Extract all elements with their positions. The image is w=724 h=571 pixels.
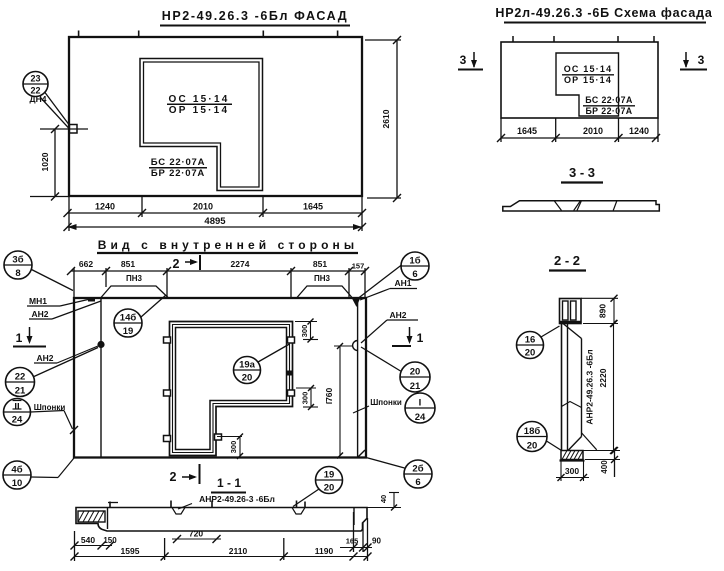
svg-text:2610: 2610	[381, 109, 391, 128]
svg-text:150: 150	[103, 536, 117, 545]
svg-text:ОС 15·14: ОС 15·14	[564, 64, 613, 74]
svg-text:23: 23	[30, 74, 40, 84]
svg-text:890: 890	[598, 304, 608, 318]
svg-text:АН2: АН2	[389, 310, 406, 320]
svg-text:300: 300	[301, 392, 310, 405]
svg-text:Вид с внутренней стороны: Вид с внутренней стороны	[98, 238, 359, 252]
svg-text:БР 22·07А: БР 22·07А	[585, 106, 632, 116]
svg-text:ПН3: ПН3	[314, 274, 331, 283]
svg-text:1190: 1190	[315, 546, 334, 556]
svg-text:20: 20	[242, 372, 253, 383]
svg-text:БР 22·07А: БР 22·07А	[151, 168, 205, 179]
svg-text:АНР2-49.26-3 -6Бл: АНР2-49.26-3 -6Бл	[199, 494, 275, 504]
svg-text:1645: 1645	[303, 202, 323, 212]
svg-text:20: 20	[525, 347, 536, 358]
svg-text:300: 300	[300, 325, 309, 338]
svg-text:2274: 2274	[231, 259, 250, 269]
svg-text:II: II	[14, 402, 19, 413]
svg-text:1: 1	[417, 331, 424, 345]
svg-text:1020: 1020	[40, 152, 50, 171]
svg-text:24: 24	[415, 412, 426, 423]
svg-text:АН2: АН2	[31, 309, 48, 319]
svg-text:1б: 1б	[409, 256, 420, 267]
svg-text:6: 6	[415, 477, 420, 488]
svg-text:20: 20	[527, 440, 538, 451]
svg-text:4б: 4б	[11, 465, 22, 476]
svg-text:400: 400	[600, 460, 609, 474]
svg-text:40: 40	[379, 495, 388, 503]
svg-text:2б: 2б	[412, 464, 423, 475]
svg-text:851: 851	[313, 259, 327, 269]
svg-text:ſ760: ſ760	[324, 387, 334, 404]
svg-text:19: 19	[324, 470, 335, 481]
svg-text:Шпонки: Шпонки	[370, 398, 402, 407]
svg-text:3 - 3: 3 - 3	[569, 165, 595, 180]
svg-text:2220: 2220	[598, 368, 608, 387]
svg-text:22: 22	[15, 372, 26, 383]
svg-text:БС 22·07А: БС 22·07А	[585, 95, 633, 105]
svg-text:720: 720	[189, 529, 203, 539]
svg-text:3: 3	[698, 53, 705, 67]
svg-text:3: 3	[460, 53, 467, 67]
svg-text:I: I	[419, 398, 422, 409]
svg-text:БС 22·07А: БС 22·07А	[151, 157, 206, 168]
svg-text:6: 6	[412, 269, 417, 280]
svg-text:662: 662	[79, 259, 93, 269]
svg-text:540: 540	[81, 535, 95, 545]
svg-text:4895: 4895	[204, 216, 226, 227]
svg-text:НР2-49.26.3 -6Бл ФАСАД: НР2-49.26.3 -6Бл ФАСАД	[162, 9, 349, 23]
svg-text:8: 8	[15, 268, 20, 279]
svg-text:10: 10	[12, 478, 23, 489]
svg-text:20: 20	[324, 482, 335, 493]
svg-text:90: 90	[372, 537, 381, 546]
svg-text:300: 300	[565, 466, 579, 476]
svg-text:2010: 2010	[583, 126, 603, 136]
svg-text:АН2: АН2	[36, 353, 53, 363]
svg-text:21: 21	[15, 385, 26, 396]
svg-text:19: 19	[123, 326, 134, 337]
svg-text:1595: 1595	[121, 546, 140, 556]
svg-text:2110: 2110	[229, 546, 248, 556]
svg-text:16: 16	[525, 335, 536, 346]
svg-text:21: 21	[410, 381, 421, 392]
svg-text:300: 300	[229, 441, 238, 454]
svg-text:1645: 1645	[517, 126, 537, 136]
svg-text:2 - 2: 2 - 2	[554, 253, 580, 268]
svg-text:МН1: МН1	[29, 296, 47, 306]
svg-text:1 - 1: 1 - 1	[217, 476, 241, 490]
svg-text:851: 851	[121, 259, 135, 269]
svg-text:18б: 18б	[524, 426, 541, 437]
svg-text:АНР2-49.26.3 -6Бл: АНР2-49.26.3 -6Бл	[585, 349, 595, 424]
svg-text:ОР 15·14: ОР 15·14	[564, 75, 612, 85]
svg-text:2: 2	[173, 257, 180, 271]
svg-text:14б: 14б	[120, 313, 137, 324]
svg-text:ПН3: ПН3	[126, 274, 143, 283]
svg-text:ДН4: ДН4	[30, 94, 47, 104]
svg-text:157: 157	[352, 262, 365, 271]
svg-text:1: 1	[16, 331, 23, 345]
svg-text:165: 165	[346, 537, 359, 546]
svg-text:АН1: АН1	[394, 278, 411, 288]
svg-text:1240: 1240	[95, 202, 115, 212]
svg-text:20: 20	[410, 367, 421, 378]
svg-text:2010: 2010	[193, 202, 213, 212]
svg-text:НР2л-49.26.3 -6Б Схема фасада: НР2л-49.26.3 -6Б Схема фасада	[495, 6, 712, 20]
svg-text:ОР 15·14: ОР 15·14	[169, 105, 229, 116]
svg-text:3б: 3б	[12, 255, 23, 266]
svg-text:2: 2	[170, 470, 177, 484]
svg-text:ОС 15·14: ОС 15·14	[169, 94, 230, 105]
svg-text:24: 24	[12, 414, 23, 425]
svg-text:19а: 19а	[239, 360, 256, 371]
svg-text:1240: 1240	[629, 126, 649, 136]
